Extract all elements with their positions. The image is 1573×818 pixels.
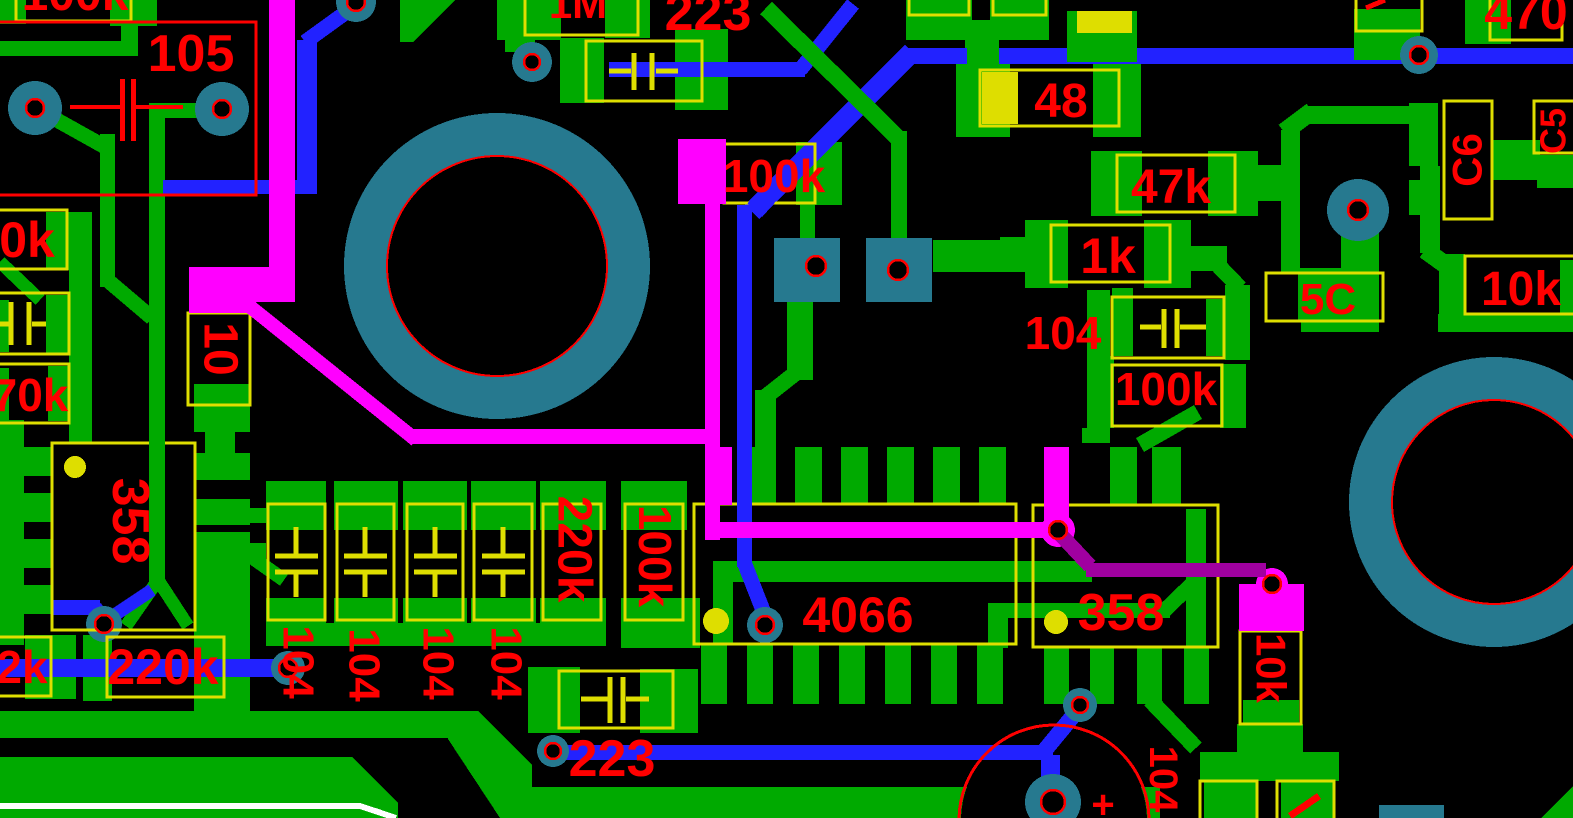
svg-text:100k: 100k xyxy=(1115,363,1218,415)
svg-text:47k: 47k xyxy=(1131,161,1211,214)
svg-text:0k: 0k xyxy=(0,212,55,268)
svg-text:100k: 100k xyxy=(723,150,826,202)
svg-text:104: 104 xyxy=(1141,746,1185,813)
svg-text:2k: 2k xyxy=(0,641,48,693)
svg-text:5C: 5C xyxy=(1300,275,1356,324)
svg-text:4066: 4066 xyxy=(802,587,913,643)
svg-text:10: 10 xyxy=(194,322,247,375)
svg-text:358: 358 xyxy=(1078,584,1165,642)
svg-text:358: 358 xyxy=(101,478,159,565)
svg-text:470: 470 xyxy=(1484,0,1567,40)
svg-text:105: 105 xyxy=(148,25,235,83)
svg-text:104: 104 xyxy=(414,626,463,700)
svg-text:C5: C5 xyxy=(1533,108,1573,154)
svg-text:100k: 100k xyxy=(22,0,129,21)
svg-text:C6: C6 xyxy=(1444,133,1491,187)
svg-text:220k: 220k xyxy=(548,496,601,603)
svg-text:220k: 220k xyxy=(107,639,218,695)
svg-text:70k: 70k xyxy=(0,369,69,421)
svg-text:10k: 10k xyxy=(1481,263,1561,316)
svg-text:48: 48 xyxy=(1034,75,1087,128)
svg-text:+: + xyxy=(1091,783,1114,818)
svg-text:104: 104 xyxy=(482,626,531,700)
svg-text:10k: 10k xyxy=(1248,633,1295,704)
svg-text:104: 104 xyxy=(340,628,389,702)
svg-text:223: 223 xyxy=(665,0,752,42)
svg-text:100k: 100k xyxy=(629,505,681,608)
svg-text:104: 104 xyxy=(1025,307,1102,359)
svg-text:1k: 1k xyxy=(1080,228,1136,284)
svg-text:1M: 1M xyxy=(549,0,607,27)
svg-text:223: 223 xyxy=(569,730,656,788)
svg-text:104: 104 xyxy=(274,625,323,699)
